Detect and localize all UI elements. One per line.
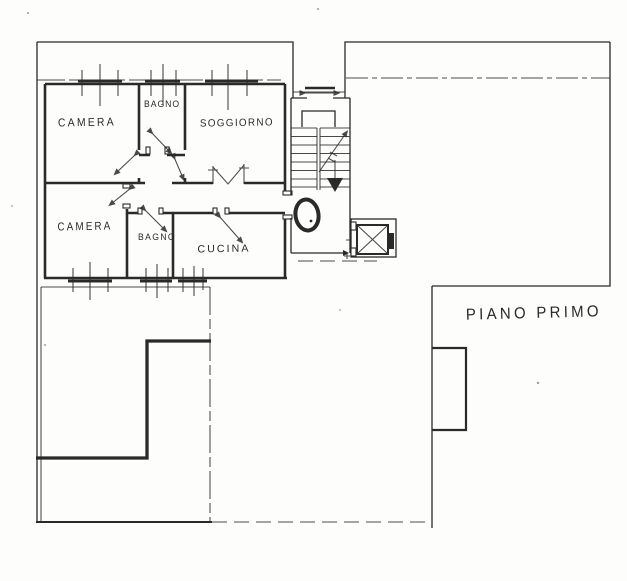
door-arrow-bagno1 xyxy=(151,132,170,152)
lower-right-section xyxy=(432,348,466,430)
room-label-bagno-1: BAGNO xyxy=(144,99,180,109)
elevator-door-post xyxy=(351,222,356,230)
outline-notch-right xyxy=(345,42,610,92)
floor-plan-drawing: CAMERA BAGNO SOGGIORNO CAMERA BAGNO CUCI… xyxy=(0,0,627,581)
stair-down-arrow-head xyxy=(327,178,343,192)
stair-landing-top xyxy=(302,111,335,127)
door-jamb xyxy=(213,208,217,214)
floor-plan-sheet: CAMERA BAGNO SOGGIORNO CAMERA BAGNO CUCI… xyxy=(0,0,627,581)
apartment-walls xyxy=(44,84,287,278)
speck xyxy=(537,382,539,384)
room-label-cucina: CUCINA xyxy=(197,243,250,256)
room-label-camera-2: CAMERA xyxy=(57,221,112,234)
door-jamb xyxy=(159,208,163,214)
speck xyxy=(317,8,319,10)
speck xyxy=(44,344,46,346)
stair-bottom-arrow-head xyxy=(343,250,349,256)
staircase xyxy=(291,92,377,261)
door-arrow-camera2 xyxy=(111,188,131,204)
elevator-door-post xyxy=(351,248,356,256)
speck xyxy=(11,205,13,207)
room-label-camera-1: CAMERA xyxy=(58,116,116,129)
terrace xyxy=(36,287,211,522)
speck xyxy=(27,12,29,14)
door-jamb xyxy=(123,184,130,188)
terrace-boundary-thick xyxy=(36,341,211,458)
scan-artifacts xyxy=(11,8,539,384)
door-arrow-camera1 xyxy=(116,154,136,173)
outline-right-wall xyxy=(432,42,610,286)
door-arrow-cucina xyxy=(219,216,241,241)
window-ticks-soggiorno xyxy=(212,64,247,110)
lower-right-notch xyxy=(432,348,466,430)
door-jamb xyxy=(138,208,142,214)
room-label-bagno-2: BAGNO xyxy=(138,232,176,243)
elevator-counterweight xyxy=(389,233,394,249)
stair-center-divider xyxy=(317,128,320,190)
door-jamb xyxy=(146,147,150,154)
building-outline xyxy=(36,42,610,528)
door-arrow-soggiorno xyxy=(174,157,183,178)
stair-steps-left-flight xyxy=(291,128,317,187)
elevator xyxy=(344,219,396,259)
balcony-door-soggiorno xyxy=(208,164,249,184)
stairwell-oval-mark xyxy=(293,198,320,232)
stairwell-oval-dot xyxy=(310,220,313,223)
door-jamb xyxy=(123,204,130,208)
elevator-cabin-cross xyxy=(357,225,388,254)
floor-title: PIANO PRIMO xyxy=(466,303,602,324)
door-jamb xyxy=(225,208,229,214)
stair-up-arrow xyxy=(319,133,346,172)
room-label-soggiorno: SOGGIORNO xyxy=(200,116,274,129)
speck xyxy=(339,309,341,311)
